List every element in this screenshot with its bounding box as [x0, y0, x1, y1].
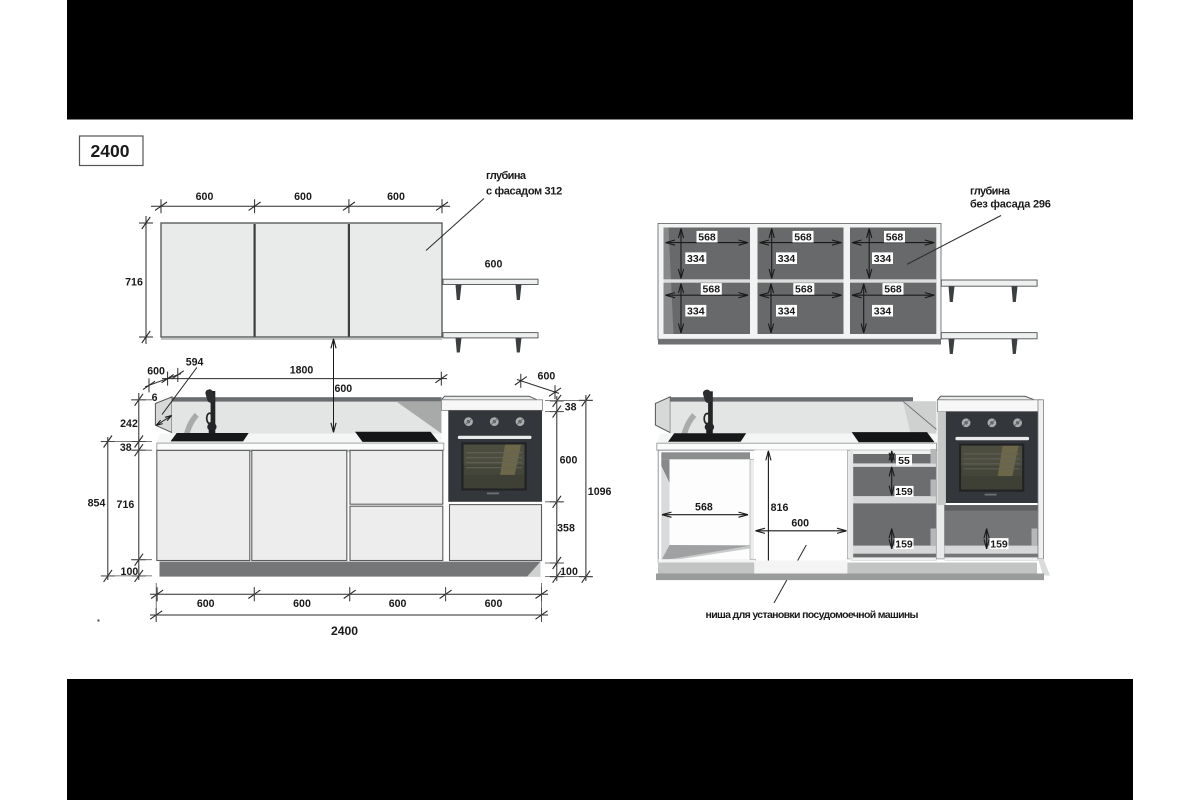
svg-text:159: 159 [990, 538, 1008, 550]
svg-text:600: 600 [196, 191, 214, 203]
svg-text:1800: 1800 [290, 364, 314, 376]
svg-text:716: 716 [125, 277, 143, 289]
svg-text:2400: 2400 [331, 624, 358, 638]
svg-text:600: 600 [293, 598, 311, 610]
svg-text:600: 600 [538, 370, 556, 382]
svg-text:55: 55 [898, 455, 910, 467]
svg-text:334: 334 [874, 253, 892, 265]
svg-text:глубина: глубина [486, 170, 527, 182]
svg-text:ниша для установки посудомоечн: ниша для установки посудомоечной машины [706, 609, 919, 621]
svg-text:600: 600 [294, 191, 312, 203]
svg-text:334: 334 [687, 306, 705, 318]
svg-text:600: 600 [334, 383, 352, 395]
svg-text:с фасадом 312: с фасадом 312 [486, 185, 562, 197]
svg-text:600: 600 [791, 517, 809, 529]
svg-text:600: 600 [387, 191, 405, 203]
svg-text:358: 358 [557, 523, 575, 535]
svg-text:2400: 2400 [91, 141, 130, 161]
svg-text:334: 334 [874, 306, 892, 318]
svg-text:334: 334 [778, 306, 796, 318]
svg-text:334: 334 [687, 253, 705, 265]
svg-text:568: 568 [794, 232, 812, 244]
svg-text:600: 600 [389, 598, 407, 610]
svg-text:600: 600 [485, 259, 503, 271]
svg-text:38: 38 [120, 442, 132, 454]
svg-text:159: 159 [895, 538, 913, 550]
svg-text:568: 568 [884, 284, 902, 296]
svg-text:816: 816 [771, 502, 789, 514]
svg-text:1096: 1096 [588, 486, 612, 498]
svg-text:568: 568 [695, 502, 713, 514]
svg-text:568: 568 [886, 232, 904, 244]
svg-text:568: 568 [698, 232, 716, 244]
svg-text:568: 568 [703, 284, 721, 296]
svg-text:600: 600 [197, 598, 215, 610]
svg-text:568: 568 [795, 284, 813, 296]
svg-text:159: 159 [895, 486, 913, 498]
svg-text:600: 600 [485, 598, 503, 610]
svg-text:600: 600 [560, 455, 578, 467]
svg-text:без фасада 296: без фасада 296 [970, 199, 1051, 211]
svg-text:глубина: глубина [970, 185, 1011, 197]
svg-text:600: 600 [147, 365, 165, 377]
svg-text:334: 334 [778, 253, 796, 265]
svg-text:594: 594 [186, 357, 204, 369]
svg-text:242: 242 [120, 418, 138, 430]
svg-text:38: 38 [565, 401, 577, 413]
svg-text:6: 6 [152, 392, 158, 404]
svg-text:716: 716 [117, 499, 135, 511]
svg-text:854: 854 [88, 498, 106, 510]
